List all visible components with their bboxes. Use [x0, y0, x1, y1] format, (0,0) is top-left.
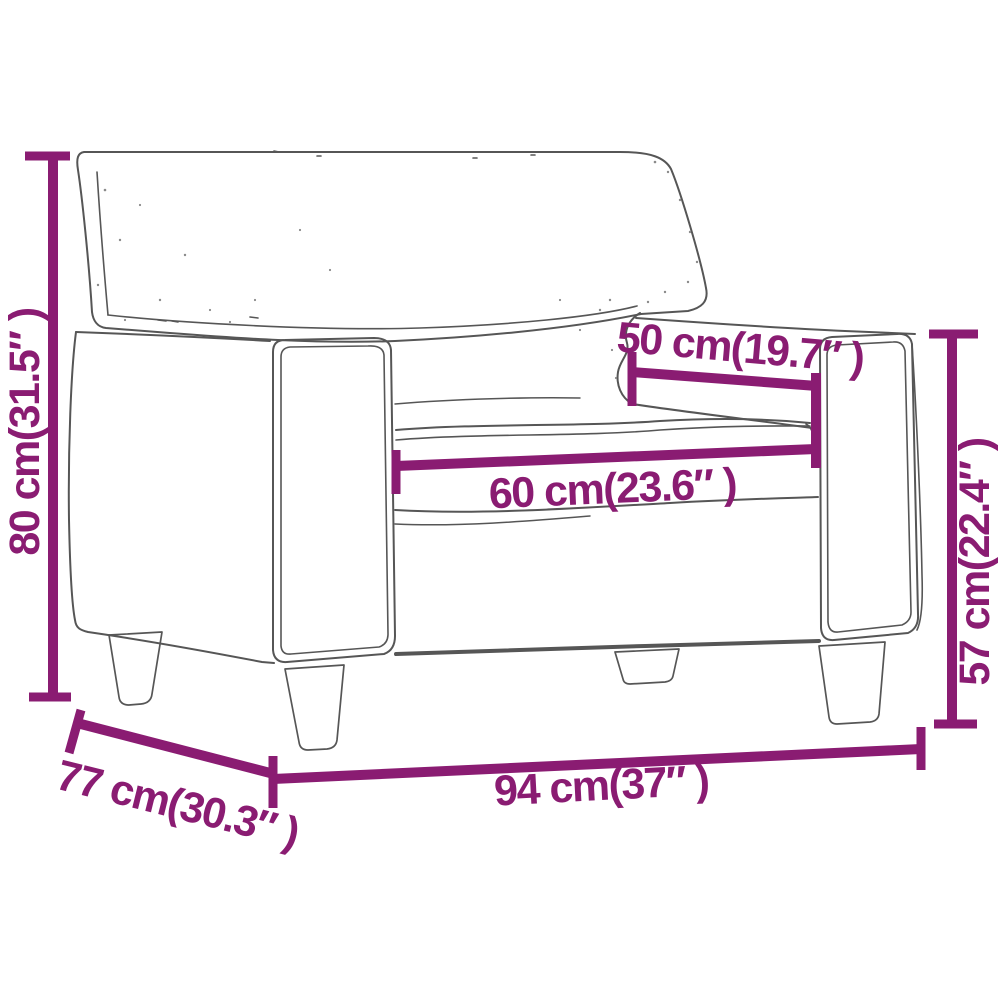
- seat-width-line: [396, 449, 816, 466]
- backrest-outline: [77, 152, 706, 342]
- depth-tick-left: [69, 710, 81, 753]
- cushion-top-edge: [396, 419, 810, 430]
- fabric-speckles: [97, 161, 698, 379]
- leg-front-right: [819, 642, 885, 724]
- left-arm-front-outer: [273, 338, 395, 662]
- dimension-label-seat-width: 60 cm(23.6″ ): [488, 460, 737, 519]
- dimension-label-width: 94 cm(37″ ): [493, 756, 710, 815]
- dimension-label-arm-height: 57 cm(22.4″ ): [951, 438, 999, 685]
- dimension-label-height: 80 cm(31.5″ ): [1, 308, 49, 555]
- cushion-top-edge-2: [396, 426, 810, 440]
- seat-deck-left: [395, 398, 580, 404]
- leg-front-left: [285, 665, 344, 750]
- backrest-inner-bottom: [108, 306, 637, 329]
- left-arm-front-inner: [281, 346, 388, 654]
- diagram-canvas: 80 cm(31.5″ ) 50 cm(19.7″ ) 60 cm(23.6″ …: [0, 0, 1000, 1000]
- left-arm-side-face: [69, 332, 274, 663]
- base-bottom-edge: [396, 641, 819, 654]
- dimension-labels: 80 cm(31.5″ ) 50 cm(19.7″ ) 60 cm(23.6″ …: [1, 308, 999, 857]
- seat-deck-right: [632, 404, 812, 428]
- armchair-dimension-diagram: 80 cm(31.5″ ) 50 cm(19.7″ ) 60 cm(23.6″ …: [0, 0, 1000, 1000]
- backrest-inner-left: [97, 172, 108, 315]
- right-arm-front-inner: [827, 342, 911, 632]
- stitch-dashes: [158, 151, 535, 322]
- leg-rear-right: [615, 649, 679, 684]
